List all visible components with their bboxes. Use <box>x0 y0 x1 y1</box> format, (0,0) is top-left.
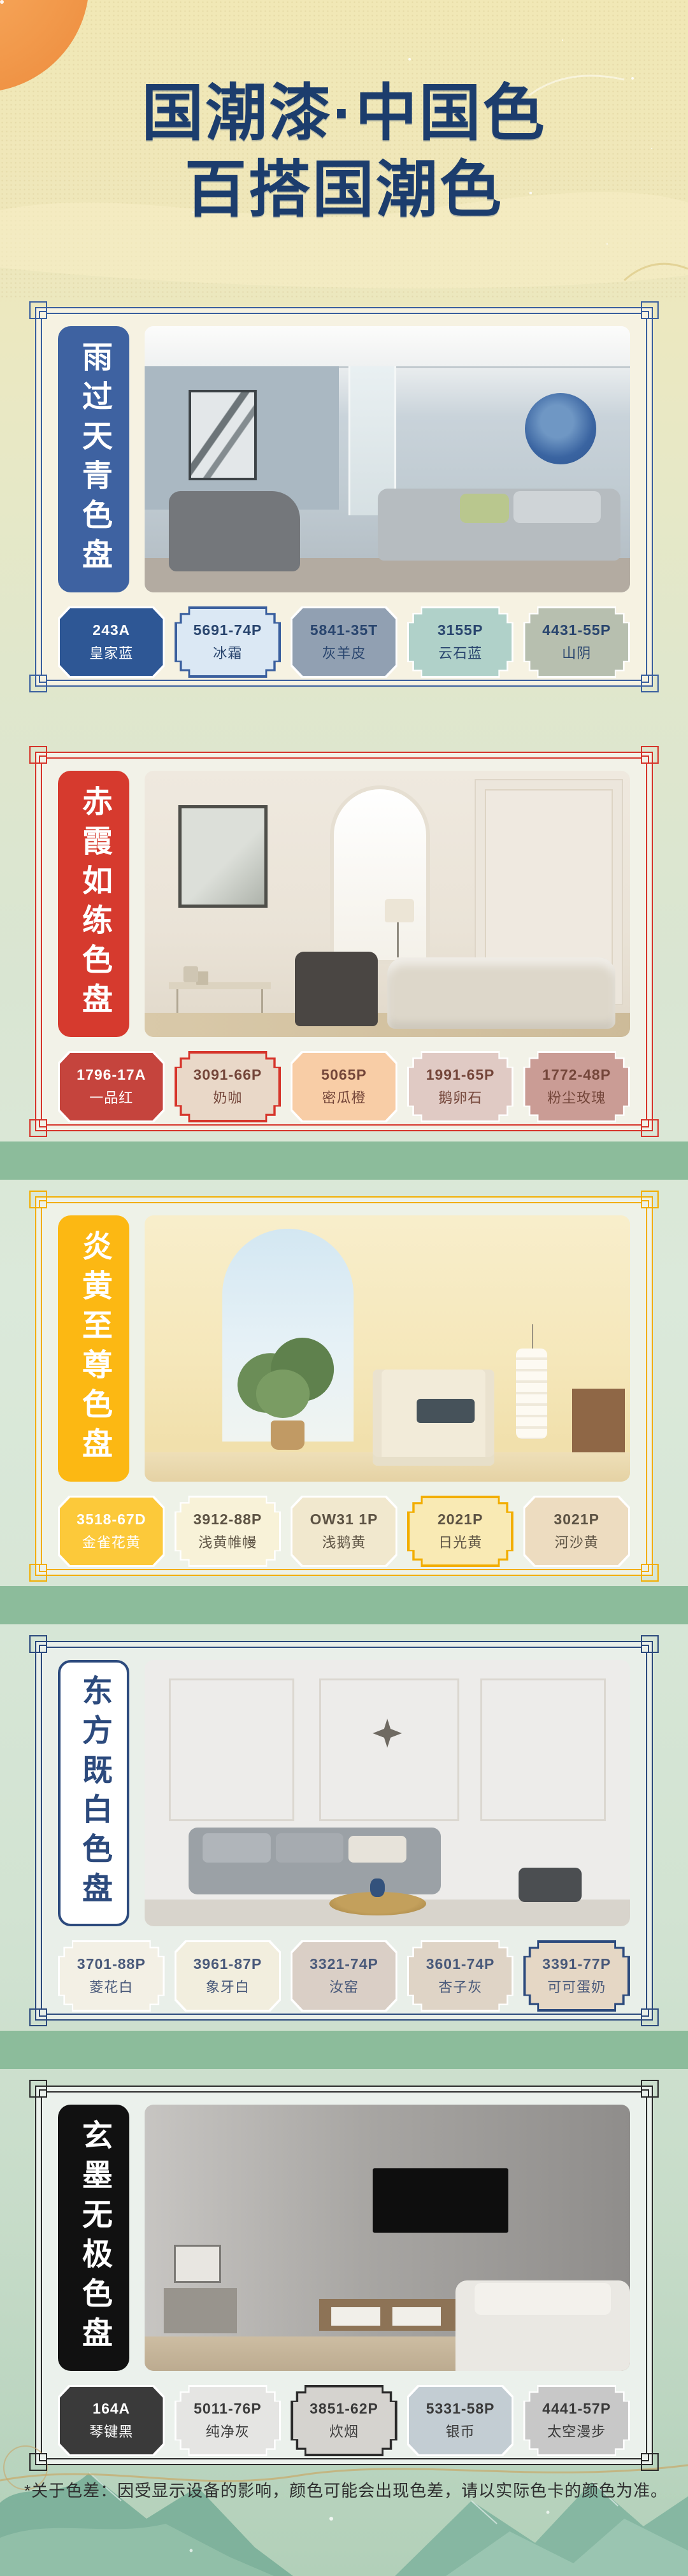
swatch-color-fill: 3155P云石蓝 <box>409 608 512 676</box>
color-swatch: 1991-65P鹅卵石 <box>407 1051 514 1122</box>
floor-lamp-pole <box>532 1324 533 1349</box>
swatch-name: 金雀花黄 <box>82 1531 141 1552</box>
swatch-name: 鹅卵石 <box>438 1087 482 1107</box>
color-swatch: 3701-88P菱花白 <box>58 1940 165 2012</box>
color-swatch: 243A皇家蓝 <box>58 606 165 678</box>
palette-card-3: 炎黄至尊色盘3518-67D金雀花黄3912-88P浅黄帷幔OW31 1P浅鹅黄… <box>35 1196 653 1576</box>
swatch-code: 3518-67D <box>76 1511 146 1528</box>
star-dots-decoration <box>0 0 4 4</box>
swatch-name: 灰羊皮 <box>322 642 366 662</box>
palette-card-body: 雨过天青色盘 <box>58 326 630 592</box>
wall-art <box>174 2245 222 2283</box>
tv-screen <box>373 2168 508 2232</box>
swatch-code: 1772-48P <box>542 1066 611 1084</box>
color-swatch: 3961-87P象牙白 <box>175 1940 282 2012</box>
room-photo <box>145 2105 630 2371</box>
wall-panel <box>480 1678 606 1821</box>
color-swatch: 5691-74P冰霜 <box>175 606 282 678</box>
frame-corner-ornament <box>29 1635 47 1653</box>
swatch-code: 3912-88P <box>194 1511 262 1528</box>
console-table <box>169 982 271 989</box>
swatch-color-fill: 5065P密瓜橙 <box>292 1053 396 1120</box>
accent-pillow <box>417 1399 475 1423</box>
accent-pillow <box>348 1836 406 1863</box>
palette-title-banner: 炎黄至尊色盘 <box>58 1215 129 1482</box>
armchair <box>295 952 378 1026</box>
swatch-row: 1796-17A一品红3091-66P奶咖5065P密瓜橙1991-65P鹅卵石… <box>58 1051 630 1122</box>
swatch-code: 3601-74P <box>426 1956 495 1973</box>
swatch-color-fill: OW31 1P浅鹅黄 <box>292 1498 396 1565</box>
palette-card-body: 玄墨无极色盘 <box>58 2105 630 2371</box>
swatch-name: 一品红 <box>89 1087 133 1107</box>
green-band-decoration <box>0 1141 688 1180</box>
swatch-color-fill: 3961-87P象牙白 <box>176 1942 280 2010</box>
swatch-name: 琴键黑 <box>89 2421 133 2441</box>
swatch-name: 浅鹅黄 <box>322 1531 366 1552</box>
swatch-code: 5691-74P <box>194 622 262 639</box>
swatch-name: 日光黄 <box>438 1531 482 1552</box>
accent-pillow <box>460 494 508 523</box>
sofa-cushion <box>203 1833 271 1863</box>
color-swatch: 3021P河沙黄 <box>523 1496 630 1567</box>
swatch-name: 浅黄帷幔 <box>198 1531 257 1552</box>
swatch-color-fill: 5691-74P冰霜 <box>177 609 279 675</box>
frame-corner-ornament <box>29 1119 47 1137</box>
swatch-color-fill: 243A皇家蓝 <box>60 608 163 676</box>
cabinet-drawer <box>392 2307 441 2326</box>
frame-corner-ornament <box>641 2453 659 2471</box>
swatch-name: 银币 <box>446 2421 475 2441</box>
color-swatch: OW31 1P浅鹅黄 <box>290 1496 398 1567</box>
swatch-name: 皇家蓝 <box>89 642 133 662</box>
pouf <box>519 1868 582 1902</box>
swatch-color-fill: 3391-77P可可蛋奶 <box>526 1943 627 2009</box>
cabinet-drawer <box>331 2307 380 2326</box>
room-photo <box>145 326 630 592</box>
color-swatch: 4431-55P山阴 <box>523 606 630 678</box>
swatch-color-fill: 5841-35T灰羊皮 <box>292 608 396 676</box>
swatch-code: 1796-17A <box>76 1066 146 1084</box>
room-photo <box>145 1215 630 1482</box>
mountain-illustration <box>0 2442 688 2576</box>
color-swatch: 3321-74P汝窑 <box>290 1940 398 2012</box>
swatch-code: 3155P <box>438 622 484 639</box>
frame-corner-ornament <box>29 2453 47 2471</box>
swatch-code: 1991-65P <box>426 1066 495 1084</box>
color-swatch: 3912-88P浅黄帷幔 <box>175 1496 282 1567</box>
palette-cards: 雨过天青色盘243A皇家蓝5691-74P冰霜5841-35T灰羊皮3155P云… <box>35 307 653 2465</box>
wall-art <box>189 390 257 480</box>
swatch-color-fill: 1991-65P鹅卵石 <box>409 1053 512 1120</box>
swatch-code: 2021P <box>438 1511 484 1528</box>
palette-title-banner: 东方既白色盘 <box>58 1660 129 1926</box>
swatch-color-fill: 2021P日光黄 <box>410 1498 512 1564</box>
swatch-color-fill: 3701-88P菱花白 <box>60 1942 163 2010</box>
swatch-name: 粉尘玫瑰 <box>547 1087 606 1107</box>
swatch-code: 243A <box>92 622 130 639</box>
palette-card-1: 雨过天青色盘243A皇家蓝5691-74P冰霜5841-35T灰羊皮3155P云… <box>35 307 653 687</box>
frame-corner-ornament <box>29 746 47 764</box>
plant-leaf <box>256 1370 310 1417</box>
table-lamp-shade <box>385 899 414 923</box>
swatch-code: 4431-55P <box>542 622 611 639</box>
color-swatch: 3155P云石蓝 <box>407 606 514 678</box>
color-swatch: 3518-67D金雀花黄 <box>58 1496 165 1567</box>
swatch-code: OW31 1P <box>310 1511 378 1528</box>
swatch-code: 3961-87P <box>194 1956 262 1973</box>
wall-art <box>178 805 268 907</box>
swatch-code: 3091-66P <box>194 1066 262 1084</box>
swatch-code: 3321-74P <box>310 1956 378 1973</box>
palette-card-body: 东方既白色盘 <box>58 1660 630 1926</box>
color-swatch: 3091-66P奶咖 <box>175 1051 282 1122</box>
swatch-color-fill: 3321-74P汝窑 <box>292 1942 396 2010</box>
page-title-line1: 国潮漆·中国色 <box>141 78 546 148</box>
color-swatch: 3601-74P杏子灰 <box>407 1940 514 2012</box>
palette-card-body: 赤霞如练色盘 <box>58 771 630 1037</box>
green-band-decoration <box>0 1586 688 1624</box>
side-cabinet <box>164 2288 236 2333</box>
swatch-name: 汝窑 <box>329 1976 359 1996</box>
swatch-color-fill: 3518-67D金雀花黄 <box>60 1498 163 1565</box>
swatch-name: 炊烟 <box>329 2421 359 2441</box>
swatch-code: 4441-57P <box>542 2400 611 2417</box>
color-swatch: 1796-17A一品红 <box>58 1051 165 1122</box>
vases <box>183 966 198 982</box>
lounge-chair <box>169 491 300 571</box>
swatch-code: 3021P <box>554 1511 599 1528</box>
palette-title: 雨过天青色盘 <box>78 341 109 578</box>
swatch-code: 3391-77P <box>542 1956 611 1973</box>
sofa-cushion <box>276 1833 344 1863</box>
frame-corner-ornament <box>641 2008 659 2026</box>
palette-title: 赤霞如练色盘 <box>78 785 109 1022</box>
palette-title: 东方既白色盘 <box>78 1675 109 1912</box>
palette-card-2: 赤霞如练色盘1796-17A一品红3091-66P奶咖5065P密瓜橙1991-… <box>35 752 653 1131</box>
palette-title-banner: 赤霞如练色盘 <box>58 771 129 1037</box>
frame-corner-ornament <box>29 2008 47 2026</box>
card-gap <box>35 1131 653 1196</box>
palette-title: 炎黄至尊色盘 <box>78 1230 109 1467</box>
swatch-name: 纯净灰 <box>206 2421 250 2441</box>
ceiling <box>145 326 630 368</box>
frame-corner-ornament <box>641 1119 659 1137</box>
table-lamp-stem <box>397 920 399 957</box>
palette-card-body: 炎黄至尊色盘 <box>58 1215 630 1482</box>
swatch-code: 164A <box>92 2400 130 2417</box>
page-title-line2: 百搭国潮色 <box>185 155 503 224</box>
wood-cabinet <box>572 1389 626 1452</box>
swatch-name: 河沙黄 <box>555 1531 599 1552</box>
frame-corner-ornament <box>641 1635 659 1653</box>
swatch-name: 象牙白 <box>206 1976 250 1996</box>
paint-color-poster: 国潮漆·中国色 百搭国潮色 雨过天青色盘243A皇家蓝5691-74P冰霜584… <box>0 0 688 2576</box>
sofa-cushion <box>513 491 601 523</box>
palette-card-5: 玄墨无极色盘164A琴键黑5011-76P纯净灰3851-62P炊烟5331-5… <box>35 2086 653 2465</box>
frame-corner-ornament <box>29 1564 47 1582</box>
swatch-name: 奶咖 <box>213 1087 242 1107</box>
swatch-name: 云石蓝 <box>438 642 482 662</box>
swatch-name: 山阴 <box>562 642 591 662</box>
swatch-name: 密瓜橙 <box>322 1087 366 1107</box>
swatch-name: 菱花白 <box>89 1976 133 1996</box>
card-gap <box>35 1576 653 1641</box>
palette-title-banner: 雨过天青色盘 <box>58 326 129 592</box>
swatch-name: 杏子灰 <box>438 1976 482 1996</box>
swatch-color-fill: 4431-55P山阴 <box>525 608 628 676</box>
wall-panel <box>169 1678 294 1821</box>
frame-corner-ornament <box>29 2080 47 2098</box>
swatch-color-fill: 1796-17A一品红 <box>60 1053 163 1120</box>
frame-corner-ornament <box>641 1564 659 1582</box>
frame-corner-ornament <box>641 301 659 319</box>
green-band-decoration <box>0 2031 688 2069</box>
color-swatch: 3391-77P可可蛋奶 <box>523 1940 630 2012</box>
sofa <box>387 957 615 1029</box>
swatch-row: 243A皇家蓝5691-74P冰霜5841-35T灰羊皮3155P云石蓝4431… <box>58 606 630 678</box>
frame-corner-ornament <box>29 1191 47 1208</box>
frame-corner-ornament <box>641 2080 659 2098</box>
swatch-color-fill: 3601-74P杏子灰 <box>409 1942 512 2010</box>
swatch-code: 5331-58P <box>426 2400 495 2417</box>
frame-corner-ornament <box>29 301 47 319</box>
swatch-code: 5011-76P <box>194 2400 261 2417</box>
swatch-row: 3701-88P菱花白3961-87P象牙白3321-74P汝窑3601-74P… <box>58 1940 630 2012</box>
page-title: 国潮漆·中国色 百搭国潮色 <box>0 75 688 228</box>
swatch-color-fill: 3912-88P浅黄帷幔 <box>176 1498 280 1565</box>
plant-pot <box>271 1420 305 1450</box>
frame-corner-ornament <box>641 675 659 692</box>
arched-window <box>334 789 426 960</box>
frame-corner-ornament <box>29 675 47 692</box>
swatch-name: 可可蛋奶 <box>547 1976 606 1996</box>
color-swatch: 2021P日光黄 <box>407 1496 514 1567</box>
swatch-color-fill: 1772-48P粉尘玫瑰 <box>525 1053 628 1120</box>
color-disclaimer-note: *关于色差：因受显示设备的影响，颜色可能会出现色差，请以实际色卡的颜色为准。 <box>24 2478 668 2501</box>
color-swatch: 5841-35T灰羊皮 <box>290 606 398 678</box>
sofa-cushion <box>475 2283 610 2315</box>
swatch-code: 3851-62P <box>310 2400 378 2417</box>
swatch-color-fill: 3021P河沙黄 <box>525 1498 628 1565</box>
palette-card-4: 东方既白色盘3701-88P菱花白3961-87P象牙白3321-74P汝窑36… <box>35 1641 653 2021</box>
palette-title-banner: 玄墨无极色盘 <box>58 2105 129 2371</box>
palette-title: 玄墨无极色盘 <box>78 2119 109 2356</box>
swatch-code: 5841-35T <box>310 622 378 639</box>
frame-corner-ornament <box>641 746 659 764</box>
paper-floor-lamp <box>516 1349 548 1439</box>
card-gap <box>35 687 653 752</box>
vase <box>370 1878 385 1897</box>
swatch-name: 太空漫步 <box>547 2421 606 2441</box>
color-swatch: 1772-48P粉尘玫瑰 <box>523 1051 630 1122</box>
swatch-row: 3518-67D金雀花黄3912-88P浅黄帷幔OW31 1P浅鹅黄2021P日… <box>58 1496 630 1567</box>
swatch-name: 冰霜 <box>213 642 242 662</box>
card-gap <box>35 2021 653 2086</box>
ceramic-plate-art <box>525 393 596 464</box>
swatch-color-fill: 3091-66P奶咖 <box>177 1054 279 1120</box>
swatch-code: 5065P <box>321 1066 367 1084</box>
room-photo <box>145 771 630 1037</box>
wall-panel <box>319 1678 459 1821</box>
frame-corner-ornament <box>641 1191 659 1208</box>
swatch-code: 3701-88P <box>77 1956 146 1973</box>
room-photo <box>145 1660 630 1926</box>
color-swatch: 5065P密瓜橙 <box>290 1051 398 1122</box>
